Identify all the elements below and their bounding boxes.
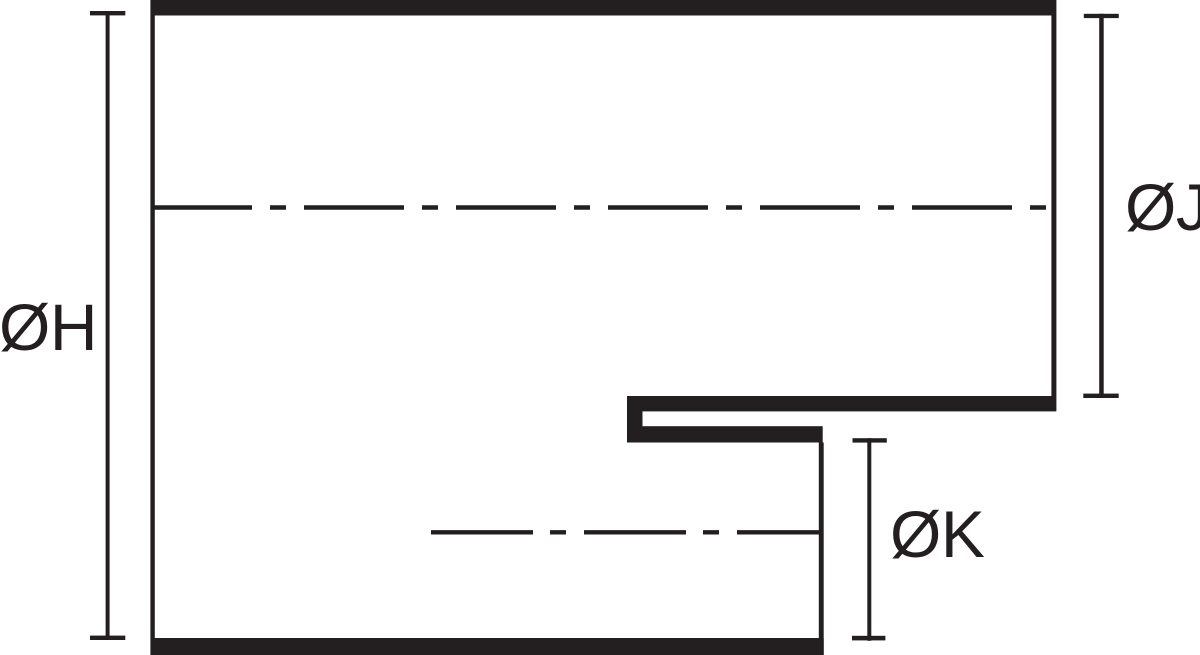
svg-text:ØJ: ØJ <box>1125 170 1200 244</box>
svg-text:ØK: ØK <box>890 497 985 571</box>
svg-text:ØH: ØH <box>0 290 97 364</box>
